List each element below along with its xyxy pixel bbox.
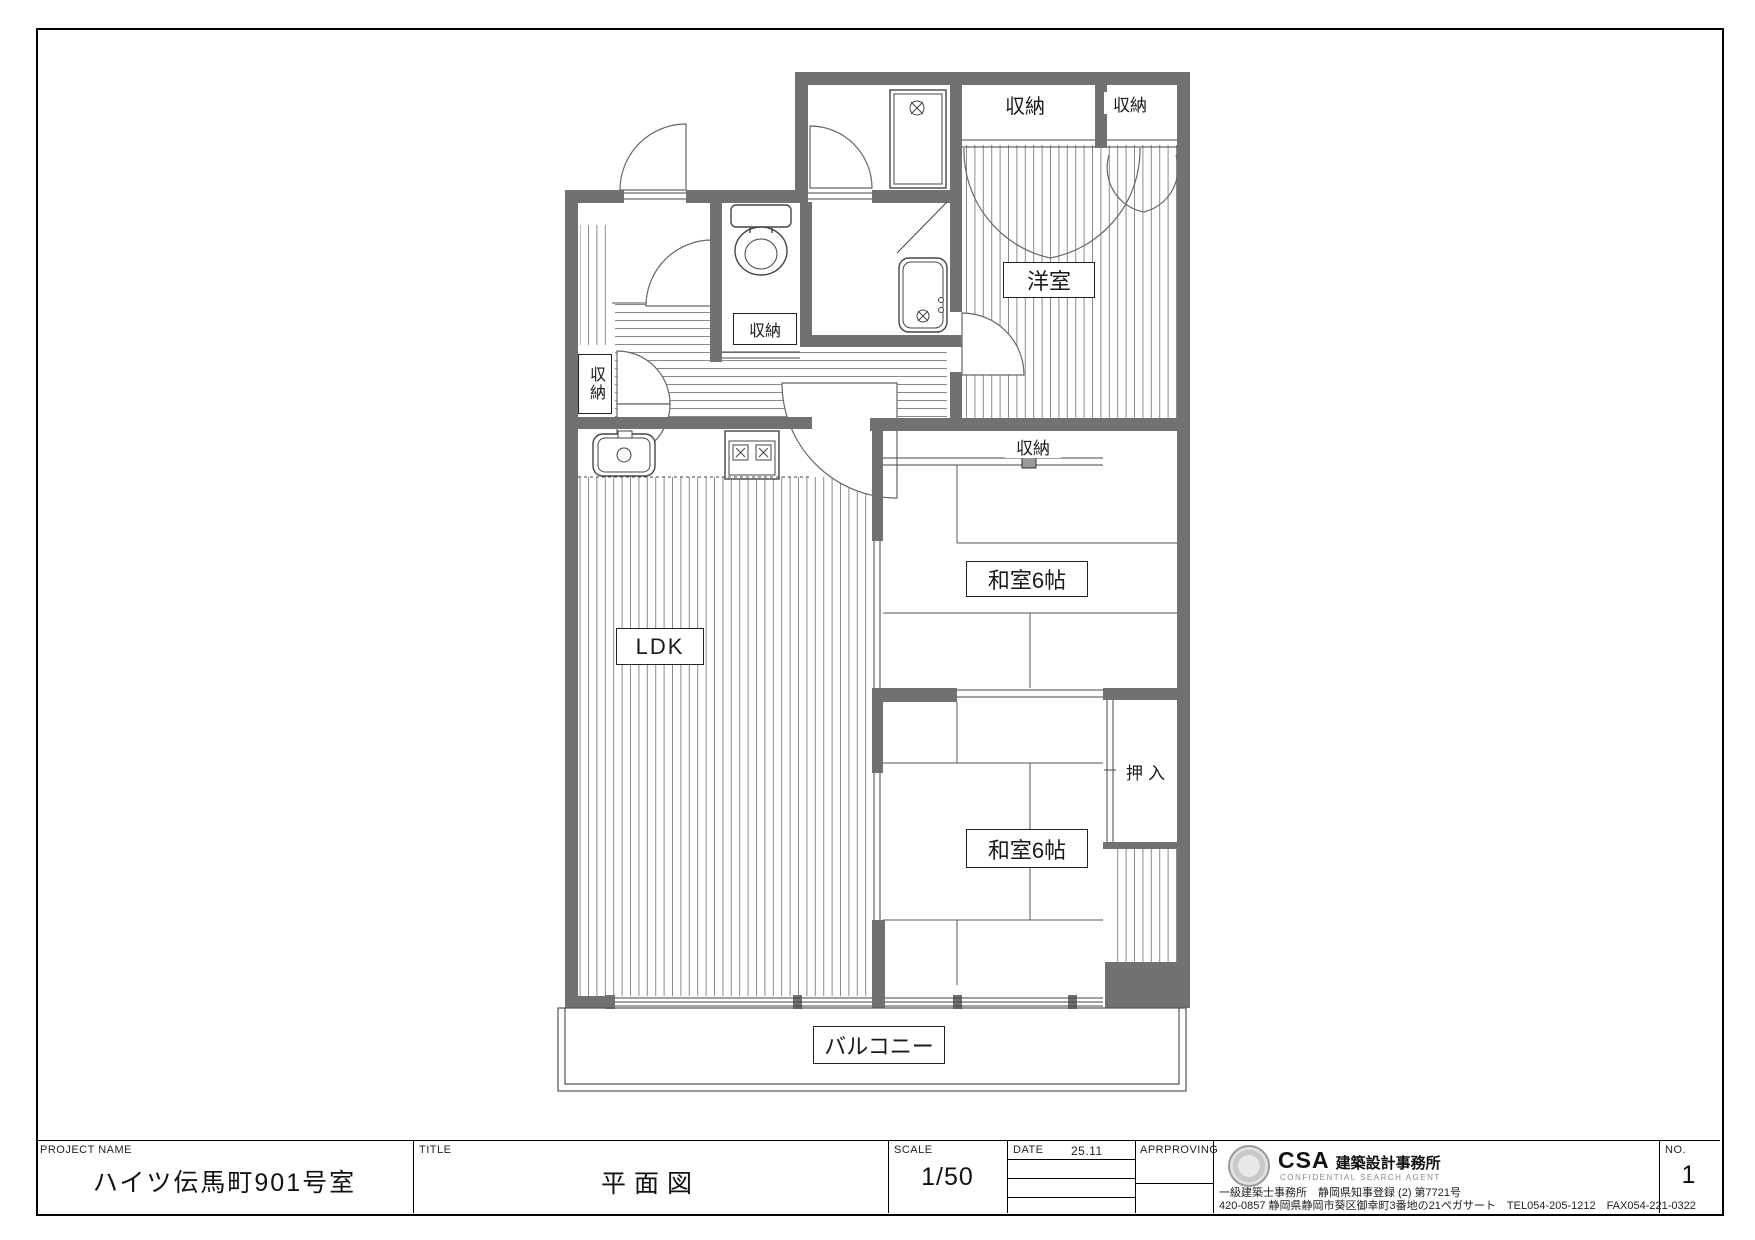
company-logo: CSA建築設計事務所 bbox=[1278, 1147, 1441, 1174]
date-value: 25.11 bbox=[1071, 1144, 1103, 1158]
entrance-door-arc bbox=[620, 124, 686, 190]
titleblock-divider bbox=[1135, 1141, 1136, 1213]
closet-label-japanese-room: 収納 bbox=[1005, 434, 1061, 458]
closet-label-hall: 収納 bbox=[733, 313, 797, 345]
drawing-title: 平面図 bbox=[413, 1164, 888, 1200]
approving-label: APRPROVING bbox=[1140, 1144, 1218, 1156]
balcony-label: バルコニー bbox=[813, 1026, 945, 1064]
drawing-sheet: LDK 洋室 和室6帖 和室6帖 バルコニー 収納 収納 収納 収納 収納 押入… bbox=[0, 0, 1755, 1240]
company-seal-icon bbox=[1228, 1145, 1270, 1187]
kitchen-sink-icon bbox=[593, 431, 655, 476]
company-address: 420-0857 静岡県静岡市葵区御幸町3番地の21ペガサート TEL054-2… bbox=[1219, 1197, 1696, 1213]
date-row-line bbox=[1007, 1178, 1135, 1179]
titleblock-divider bbox=[1007, 1141, 1008, 1213]
company-logo-name: 建築設計事務所 bbox=[1336, 1155, 1441, 1172]
company-logo-subtitle: CONFIDENTIAL SEARCH AGENT bbox=[1280, 1173, 1441, 1182]
closet-label-entrance: 収納 bbox=[578, 354, 612, 414]
closet-label-top-1: 収納 bbox=[995, 92, 1055, 116]
room-label-japanese-room-2: 和室6帖 bbox=[966, 829, 1088, 868]
scale-value: 1/50 bbox=[888, 1163, 1007, 1192]
washing-machine-pan-icon bbox=[890, 90, 946, 188]
date-row-line bbox=[1007, 1197, 1135, 1198]
date-row-line bbox=[1007, 1159, 1135, 1160]
project-name-label: PROJECT NAME bbox=[40, 1144, 132, 1156]
toilet-door-arc bbox=[646, 240, 712, 306]
toilet-icon bbox=[731, 205, 791, 275]
utility-door-arc bbox=[810, 126, 872, 188]
room-label-japanese-room-1: 和室6帖 bbox=[966, 561, 1088, 597]
bathtub-icon bbox=[899, 258, 947, 332]
title-label: TITLE bbox=[419, 1144, 451, 1156]
room-label-ldk: LDK bbox=[616, 628, 704, 665]
approving-row-line bbox=[1135, 1183, 1213, 1184]
date-label: DATE bbox=[1013, 1144, 1044, 1156]
room-label-western-room: 洋室 bbox=[1003, 262, 1095, 298]
scale-label: SCALE bbox=[894, 1144, 933, 1156]
closet-label-top-2: 収納 bbox=[1104, 92, 1156, 114]
oshiire-label: 押入 bbox=[1120, 758, 1176, 784]
sheet-no-label: NO. bbox=[1665, 1144, 1686, 1156]
project-name: ハイツ伝馬町901号室 bbox=[36, 1163, 413, 1199]
title-block: PROJECT NAME ハイツ伝馬町901号室 TITLE 平面図 SCALE… bbox=[36, 1140, 1720, 1213]
stove-icon bbox=[725, 431, 779, 479]
sheet-number: 1 bbox=[1659, 1161, 1720, 1190]
company-logo-text: CSA bbox=[1278, 1147, 1330, 1173]
